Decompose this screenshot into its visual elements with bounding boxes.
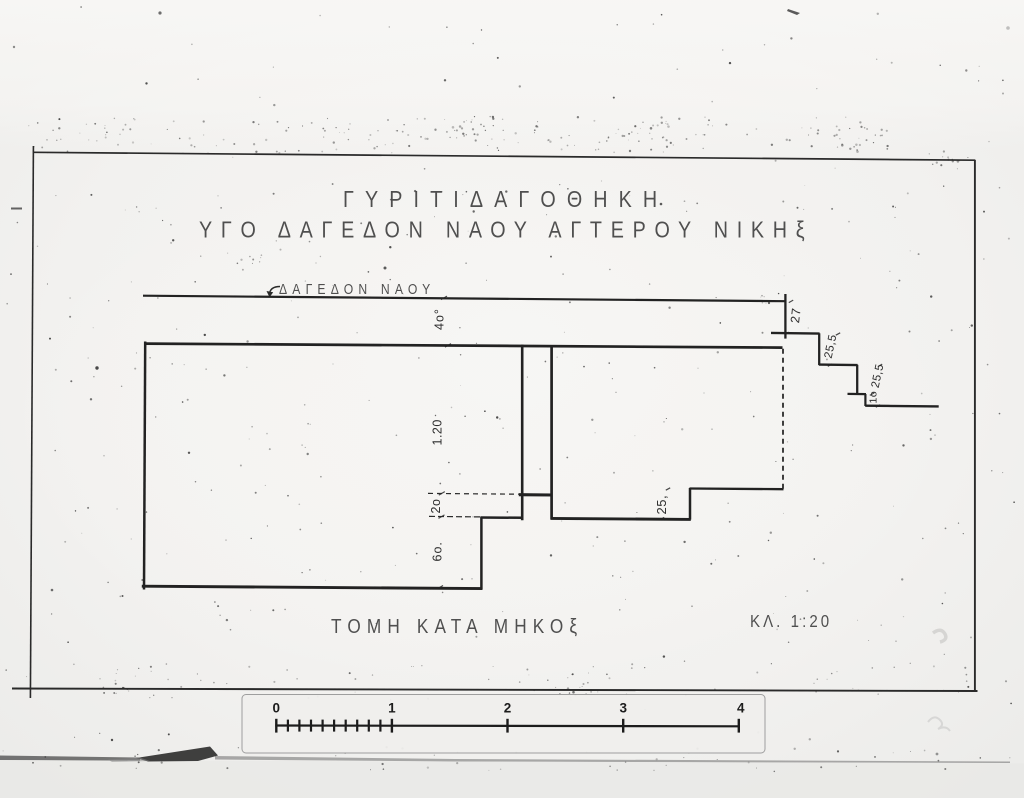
svg-text:ΥΓΟ ΔΑΓΕΔΟΝ ΝΑΟΥ ΑΓΤΕΡΟΥ ΝΙΚΗξ: ΥΓΟ ΔΑΓΕΔΟΝ ΝΑΟΥ ΑΓΤΕΡΟΥ ΝΙΚΗξ xyxy=(199,216,805,243)
svg-text:ΤΟΜΗ ΚΑΤΑ ΜΗΚΟξ: ΤΟΜΗ ΚΑΤΑ ΜΗΚΟξ xyxy=(331,616,578,639)
svg-text:1.20: 1.20 xyxy=(431,419,445,445)
svg-text:6o.: 6o. xyxy=(430,541,444,561)
svg-text:25,: 25, xyxy=(654,495,669,515)
svg-text:4: 4 xyxy=(737,701,745,716)
svg-text:1: 1 xyxy=(388,701,396,716)
svg-text:1o: 1o xyxy=(868,391,880,404)
svg-text:2: 2 xyxy=(504,701,512,716)
svg-text:4o°: 4o° xyxy=(433,308,447,330)
svg-text:3: 3 xyxy=(619,701,627,716)
svg-text:2o: 2o xyxy=(429,499,443,514)
svg-text:0: 0 xyxy=(273,701,281,716)
svg-text:27: 27 xyxy=(788,307,804,324)
